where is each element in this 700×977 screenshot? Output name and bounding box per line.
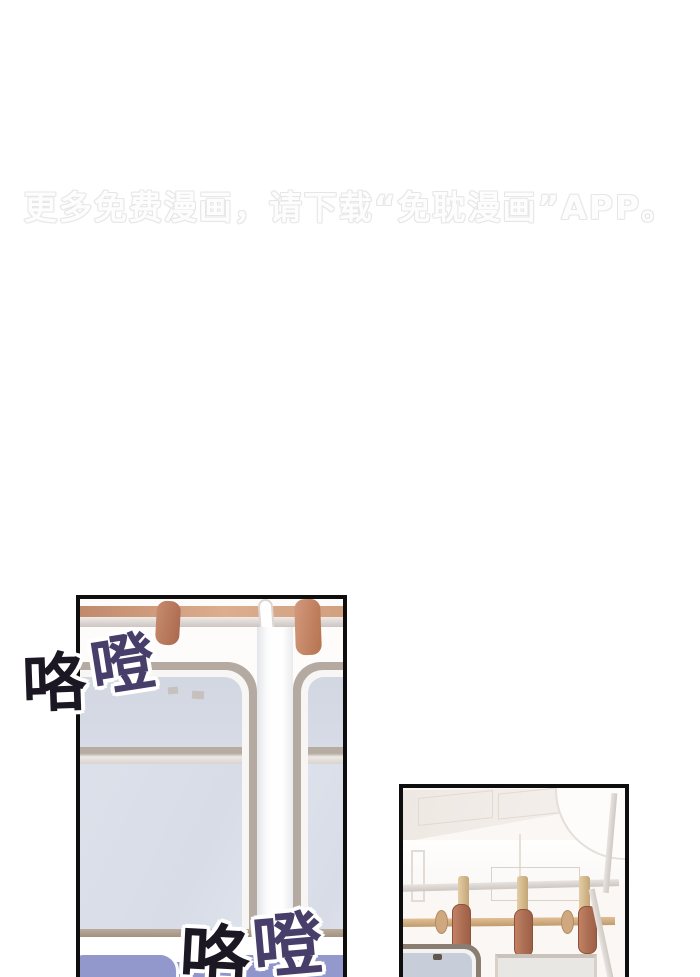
window-latch [168, 686, 179, 694]
wall-pillar [257, 627, 293, 929]
window-latch [433, 954, 442, 960]
handrail-flange [561, 910, 574, 934]
seat-back [76, 955, 176, 977]
sfx-rattle-bottom: 咯噔 [180, 890, 322, 977]
hand-strap-grip [514, 909, 533, 957]
handrail-flange [435, 910, 448, 934]
window-divider-bar [76, 747, 242, 764]
sfx-char-2: 噔 [248, 887, 327, 977]
wall-frame-outline [411, 850, 425, 902]
sfx-char-2: 噔 [83, 610, 161, 711]
hand-strap-left [155, 600, 181, 645]
train-window-small [399, 944, 481, 977]
comic-page: { "watermark": { "text": "更多免费漫画，请下载“免耽漫… [0, 0, 700, 977]
sfx-char-1: 咯 [20, 631, 87, 725]
watermark-text: 更多免费漫画，请下载“免耽漫画”APP。 [0, 181, 700, 229]
hand-strap-right [294, 599, 322, 656]
train-window-mid [495, 954, 597, 977]
sfx-rattle-top: 咯噔 [22, 616, 154, 708]
window-glass-upper [308, 677, 347, 747]
window-divider-bar [308, 747, 347, 764]
comic-panel-straps [399, 784, 629, 977]
sfx-char-1: 咯 [177, 900, 252, 977]
window-latch [192, 691, 205, 700]
